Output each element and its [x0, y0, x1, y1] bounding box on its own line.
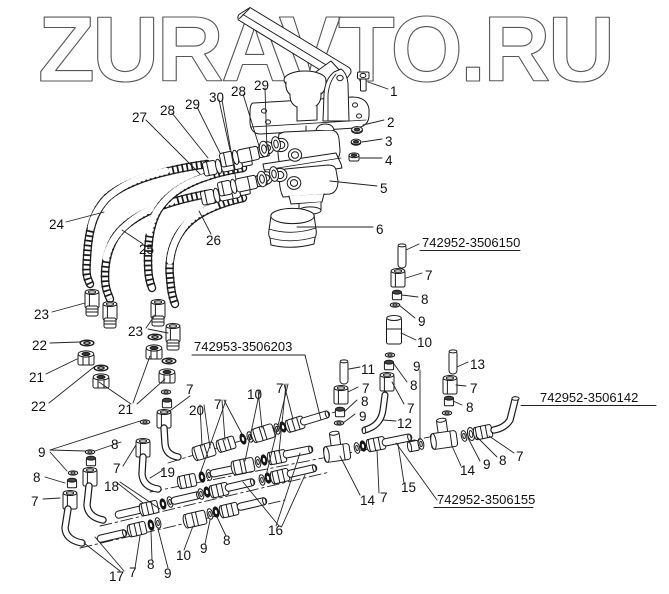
svg-text:24: 24: [49, 217, 65, 232]
svg-text:7: 7: [516, 449, 524, 464]
svg-text:9: 9: [164, 566, 172, 581]
svg-text:7: 7: [186, 382, 194, 397]
svg-text:28: 28: [231, 84, 246, 99]
svg-text:742953-3506203: 742953-3506203: [194, 339, 292, 354]
svg-text:8: 8: [147, 557, 155, 572]
svg-text:8: 8: [223, 533, 231, 548]
svg-text:22: 22: [32, 338, 47, 353]
svg-text:742952-3506155: 742952-3506155: [437, 492, 535, 507]
svg-text:29: 29: [254, 78, 269, 93]
svg-text:8: 8: [421, 292, 429, 307]
svg-text:7: 7: [31, 494, 39, 509]
svg-text:27: 27: [132, 110, 147, 125]
svg-text:9: 9: [413, 359, 421, 374]
svg-text:8: 8: [499, 453, 507, 468]
svg-text:15: 15: [401, 480, 416, 495]
svg-text:30: 30: [209, 90, 224, 105]
svg-text:742952-3506142: 742952-3506142: [540, 390, 638, 405]
svg-text:9: 9: [38, 445, 46, 460]
svg-text:3: 3: [385, 134, 393, 149]
svg-text:8: 8: [466, 400, 474, 415]
svg-text:12: 12: [397, 416, 412, 431]
svg-text:11: 11: [361, 362, 375, 377]
svg-text:28: 28: [160, 103, 175, 118]
svg-text:5: 5: [380, 181, 388, 196]
svg-text:23: 23: [128, 324, 143, 339]
svg-text:19: 19: [160, 465, 175, 480]
svg-text:26: 26: [206, 233, 221, 248]
svg-text:17: 17: [109, 569, 124, 584]
svg-text:9: 9: [483, 457, 491, 472]
svg-text:2: 2: [387, 115, 395, 130]
svg-text:25: 25: [139, 242, 154, 257]
svg-text:16: 16: [268, 523, 283, 538]
svg-text:7: 7: [470, 381, 478, 396]
svg-text:7: 7: [129, 565, 137, 580]
svg-text:4: 4: [385, 153, 393, 168]
svg-text:9: 9: [418, 314, 426, 329]
svg-text:10: 10: [247, 387, 262, 402]
svg-text:7: 7: [276, 381, 284, 396]
svg-text:21: 21: [29, 370, 44, 385]
svg-text:9: 9: [359, 409, 367, 424]
svg-text:7: 7: [214, 397, 222, 412]
svg-text:1: 1: [390, 84, 398, 99]
svg-text:7: 7: [425, 268, 433, 283]
svg-text:13: 13: [470, 357, 485, 372]
svg-text:23: 23: [34, 307, 49, 322]
svg-text:21: 21: [118, 402, 133, 417]
svg-text:7: 7: [113, 461, 121, 476]
svg-text:8: 8: [33, 470, 41, 485]
svg-text:7: 7: [380, 490, 388, 505]
svg-text:8: 8: [111, 437, 119, 452]
svg-text:10: 10: [417, 335, 432, 350]
svg-text:20: 20: [189, 403, 204, 418]
svg-text:18: 18: [104, 479, 119, 494]
svg-text:22: 22: [31, 399, 46, 414]
svg-text:8: 8: [361, 394, 369, 409]
svg-text:8: 8: [410, 378, 418, 393]
svg-text:6: 6: [376, 222, 384, 237]
svg-text:29: 29: [185, 97, 200, 112]
svg-text:7: 7: [407, 401, 415, 416]
svg-text:14: 14: [360, 493, 376, 508]
svg-text:9: 9: [200, 541, 208, 556]
svg-text:14: 14: [460, 463, 476, 478]
svg-text:742952-3506150: 742952-3506150: [422, 235, 520, 250]
svg-text:10: 10: [176, 548, 191, 563]
